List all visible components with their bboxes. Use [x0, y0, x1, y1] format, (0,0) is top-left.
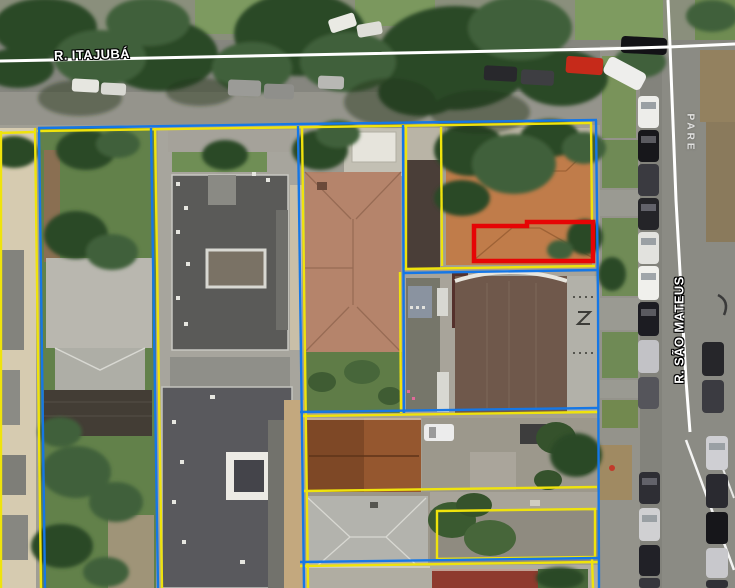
map-viewport[interactable]: R. ITAJUBÁ R. SÃO MATEUS PARE — [0, 0, 735, 588]
satellite-canvas — [0, 0, 735, 588]
car-driveway — [424, 424, 454, 441]
fire-hydrant-dot — [609, 465, 615, 471]
cars-sao-mateus-west — [638, 96, 660, 588]
